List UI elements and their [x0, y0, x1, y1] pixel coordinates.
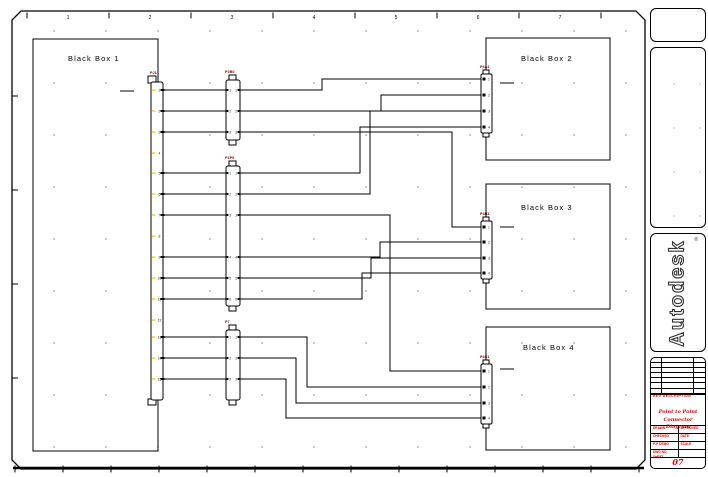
- label: 1: [235, 335, 237, 339]
- label: Black Box 3: [521, 203, 573, 212]
- label: 8: [159, 234, 161, 238]
- label: 5: [235, 276, 237, 280]
- label: Black Box 2: [521, 54, 573, 63]
- pin-terminal: [483, 386, 486, 389]
- field-blank: [679, 450, 706, 457]
- pin-mark: [152, 378, 156, 379]
- revision-table: [651, 358, 705, 395]
- field-scale: SCALE: [679, 442, 706, 449]
- pin-terminal: [238, 89, 240, 91]
- pin-terminal: [161, 110, 165, 112]
- label: 3: [235, 130, 237, 134]
- pin-terminal: [227, 256, 229, 258]
- pin-terminal: [483, 226, 486, 229]
- pin-terminal: [238, 298, 240, 300]
- label: P7: [225, 320, 230, 324]
- field-project: P-P DEMO: [651, 442, 679, 449]
- pin-terminal: [238, 357, 240, 359]
- label: 1: [488, 77, 490, 81]
- autodesk-logo-box: Autodesk ®: [650, 233, 706, 352]
- pin-terminal: [227, 336, 229, 338]
- wire: [163, 215, 481, 371]
- wire: [163, 127, 481, 173]
- pin-terminal: [161, 357, 165, 359]
- pin-terminal: [227, 214, 229, 216]
- label: PJ1: [150, 71, 157, 75]
- pin-terminal: [483, 402, 486, 405]
- wire: [163, 132, 481, 227]
- pin-terminal: [161, 336, 165, 338]
- pin-terminal: [238, 378, 240, 380]
- black-box-1: [33, 39, 158, 451]
- pin-mark: [152, 256, 156, 257]
- pin-mark: [152, 235, 156, 236]
- pin-terminal: [227, 131, 229, 133]
- label: 2: [149, 15, 152, 21]
- pin-terminal: [161, 214, 165, 216]
- pin-terminal: [483, 272, 486, 275]
- label: 3: [488, 256, 490, 260]
- field-drawn: DRAWN: [651, 426, 679, 433]
- pin-terminal: [161, 172, 165, 174]
- label: 2: [159, 109, 161, 113]
- label: 1: [235, 171, 237, 175]
- pin-terminal: [483, 126, 486, 129]
- pin-mark: [152, 152, 156, 153]
- pin-terminal: [161, 89, 165, 91]
- pin-terminal: [161, 298, 165, 300]
- pin-terminal: [227, 277, 229, 279]
- pin-mark: [152, 298, 156, 299]
- label: 3: [229, 130, 231, 134]
- pin-terminal: [227, 298, 229, 300]
- label: 3: [229, 377, 231, 381]
- label: 4: [235, 255, 237, 259]
- sheet-number: 07: [651, 457, 705, 467]
- pin-mark: [152, 193, 156, 194]
- pin-terminal: [238, 131, 240, 133]
- label: 3: [488, 109, 490, 113]
- field-row: P-P DEMO SCALE: [651, 442, 705, 450]
- pin-terminal: [161, 256, 165, 258]
- label: 6: [159, 192, 161, 196]
- label: 6: [477, 15, 480, 21]
- label: 2: [235, 192, 237, 196]
- drawing-sheet[interactable]: Black Box 1Black Box 2Black Box 3Black B…: [0, 0, 708, 477]
- label: P2B0: [225, 70, 235, 74]
- connector-p1p5: [226, 166, 240, 306]
- pin-terminal: [238, 256, 240, 258]
- label: 7: [559, 15, 562, 21]
- connector-p4b1: [481, 221, 492, 279]
- label: 5: [229, 276, 231, 280]
- label: 2: [235, 356, 237, 360]
- label: Black Box 4: [523, 343, 575, 352]
- drawing-title-line1: Point to Point: [651, 409, 705, 417]
- label: P4B1: [480, 212, 490, 216]
- pin-terminal: [483, 417, 486, 420]
- label: 3: [229, 213, 231, 217]
- title-column: Autodesk ® REV DESCRIPTION Point to Poin…: [648, 0, 708, 477]
- pin-terminal: [483, 110, 486, 113]
- label: 5: [159, 171, 161, 175]
- wire: [163, 258, 481, 278]
- revision-table-header: REV DESCRIPTION: [653, 395, 691, 399]
- label: 5: [395, 15, 398, 21]
- registered-mark-icon: ®: [694, 237, 698, 243]
- label: 1: [159, 88, 161, 92]
- pin-terminal: [161, 131, 165, 133]
- autodesk-logo: Autodesk: [667, 239, 690, 346]
- label: 2: [488, 240, 490, 244]
- connector-p7: [226, 330, 240, 400]
- label: 12: [158, 318, 162, 322]
- label: 1: [67, 15, 70, 21]
- label: 3: [235, 213, 237, 217]
- label: 4: [488, 271, 490, 275]
- label: 2: [235, 109, 237, 113]
- pin-terminal: [161, 378, 165, 380]
- pin-terminal: [227, 357, 229, 359]
- wiring-diagram-canvas: Black Box 1Black Box 2Black Box 3Black B…: [0, 0, 708, 477]
- connector-pj1: [151, 82, 163, 400]
- pin-terminal: [227, 89, 229, 91]
- pin-mark: [152, 172, 156, 173]
- pin-terminal: [483, 94, 486, 97]
- pin-terminal: [238, 110, 240, 112]
- label: 1: [229, 88, 231, 92]
- field-date: DATE: [679, 434, 706, 441]
- label: 9: [159, 255, 161, 259]
- pin-terminal: [483, 257, 486, 260]
- pin-mark: [152, 277, 156, 278]
- label: 1: [488, 225, 490, 229]
- label: 7: [159, 213, 161, 217]
- pin-mark: [152, 214, 156, 215]
- pin-terminal: [483, 370, 486, 373]
- label: 1: [229, 171, 231, 175]
- pin-mark: [152, 357, 156, 358]
- label: P4C1: [480, 355, 490, 359]
- label: 2: [488, 93, 490, 97]
- connector-p4c1: [481, 364, 492, 424]
- title-strip-top: [650, 8, 706, 42]
- wire: [163, 358, 481, 403]
- label: 2: [229, 109, 231, 113]
- wire: [163, 111, 481, 194]
- connector-p4a1: [481, 74, 492, 133]
- label: 1: [235, 88, 237, 92]
- label: P1P5: [225, 156, 234, 160]
- label: 3: [159, 130, 161, 134]
- sheet-border: [12, 11, 645, 469]
- pin-mark: [152, 319, 156, 320]
- pin-terminal: [238, 214, 240, 216]
- pin-terminal: [238, 172, 240, 174]
- wire: [163, 242, 481, 257]
- pin-terminal: [227, 378, 229, 380]
- label: Black Box 1: [68, 54, 120, 63]
- label: 4: [488, 125, 490, 129]
- wire: [163, 273, 481, 299]
- label: P4A1: [480, 65, 490, 69]
- pin-terminal: [483, 241, 486, 244]
- pin-terminal: [161, 193, 165, 195]
- pin-mark: [152, 110, 156, 111]
- label: 3: [231, 15, 234, 21]
- pin-terminal: [483, 78, 486, 81]
- wire: [163, 79, 481, 90]
- label: 4: [313, 15, 316, 21]
- label: 6: [229, 297, 231, 301]
- field-approved: APPROVED: [679, 426, 706, 433]
- label: 4: [229, 255, 231, 259]
- label: 4: [488, 416, 490, 420]
- label: 6: [235, 297, 237, 301]
- pin-terminal: [238, 277, 240, 279]
- field-checked: CHECKED: [651, 434, 679, 441]
- pin-mark: [152, 336, 156, 337]
- label: 4: [159, 151, 161, 155]
- label: 3: [488, 401, 490, 405]
- pin-terminal: [161, 277, 165, 279]
- pin-terminal: [238, 193, 240, 195]
- label: 2: [488, 385, 490, 389]
- label: 2: [229, 192, 231, 196]
- label: 2: [229, 356, 231, 360]
- pin-terminal: [227, 110, 229, 112]
- title-block-fields: DRAWN APPROVED CHECKED DATE P-P DEMO SCA…: [651, 426, 705, 458]
- label: 1: [488, 369, 490, 373]
- pin-terminal: [238, 336, 240, 338]
- pin-terminal: [227, 172, 229, 174]
- label: 3: [235, 377, 237, 381]
- field-row: CHECKED DATE: [651, 434, 705, 442]
- drawing-title: Point to Point Connector Diagram: [651, 402, 705, 426]
- wire: [163, 379, 481, 418]
- title-strip-notes: [650, 47, 706, 228]
- title-block: REV DESCRIPTION Point to Point Connector…: [650, 357, 706, 469]
- pin-terminal: [227, 193, 229, 195]
- pin-mark: [152, 89, 156, 90]
- field-row: DRAWN APPROVED: [651, 426, 705, 434]
- revision-row: [651, 389, 705, 394]
- pin-mark: [152, 131, 156, 132]
- wire: [163, 95, 481, 111]
- label: 1: [229, 335, 231, 339]
